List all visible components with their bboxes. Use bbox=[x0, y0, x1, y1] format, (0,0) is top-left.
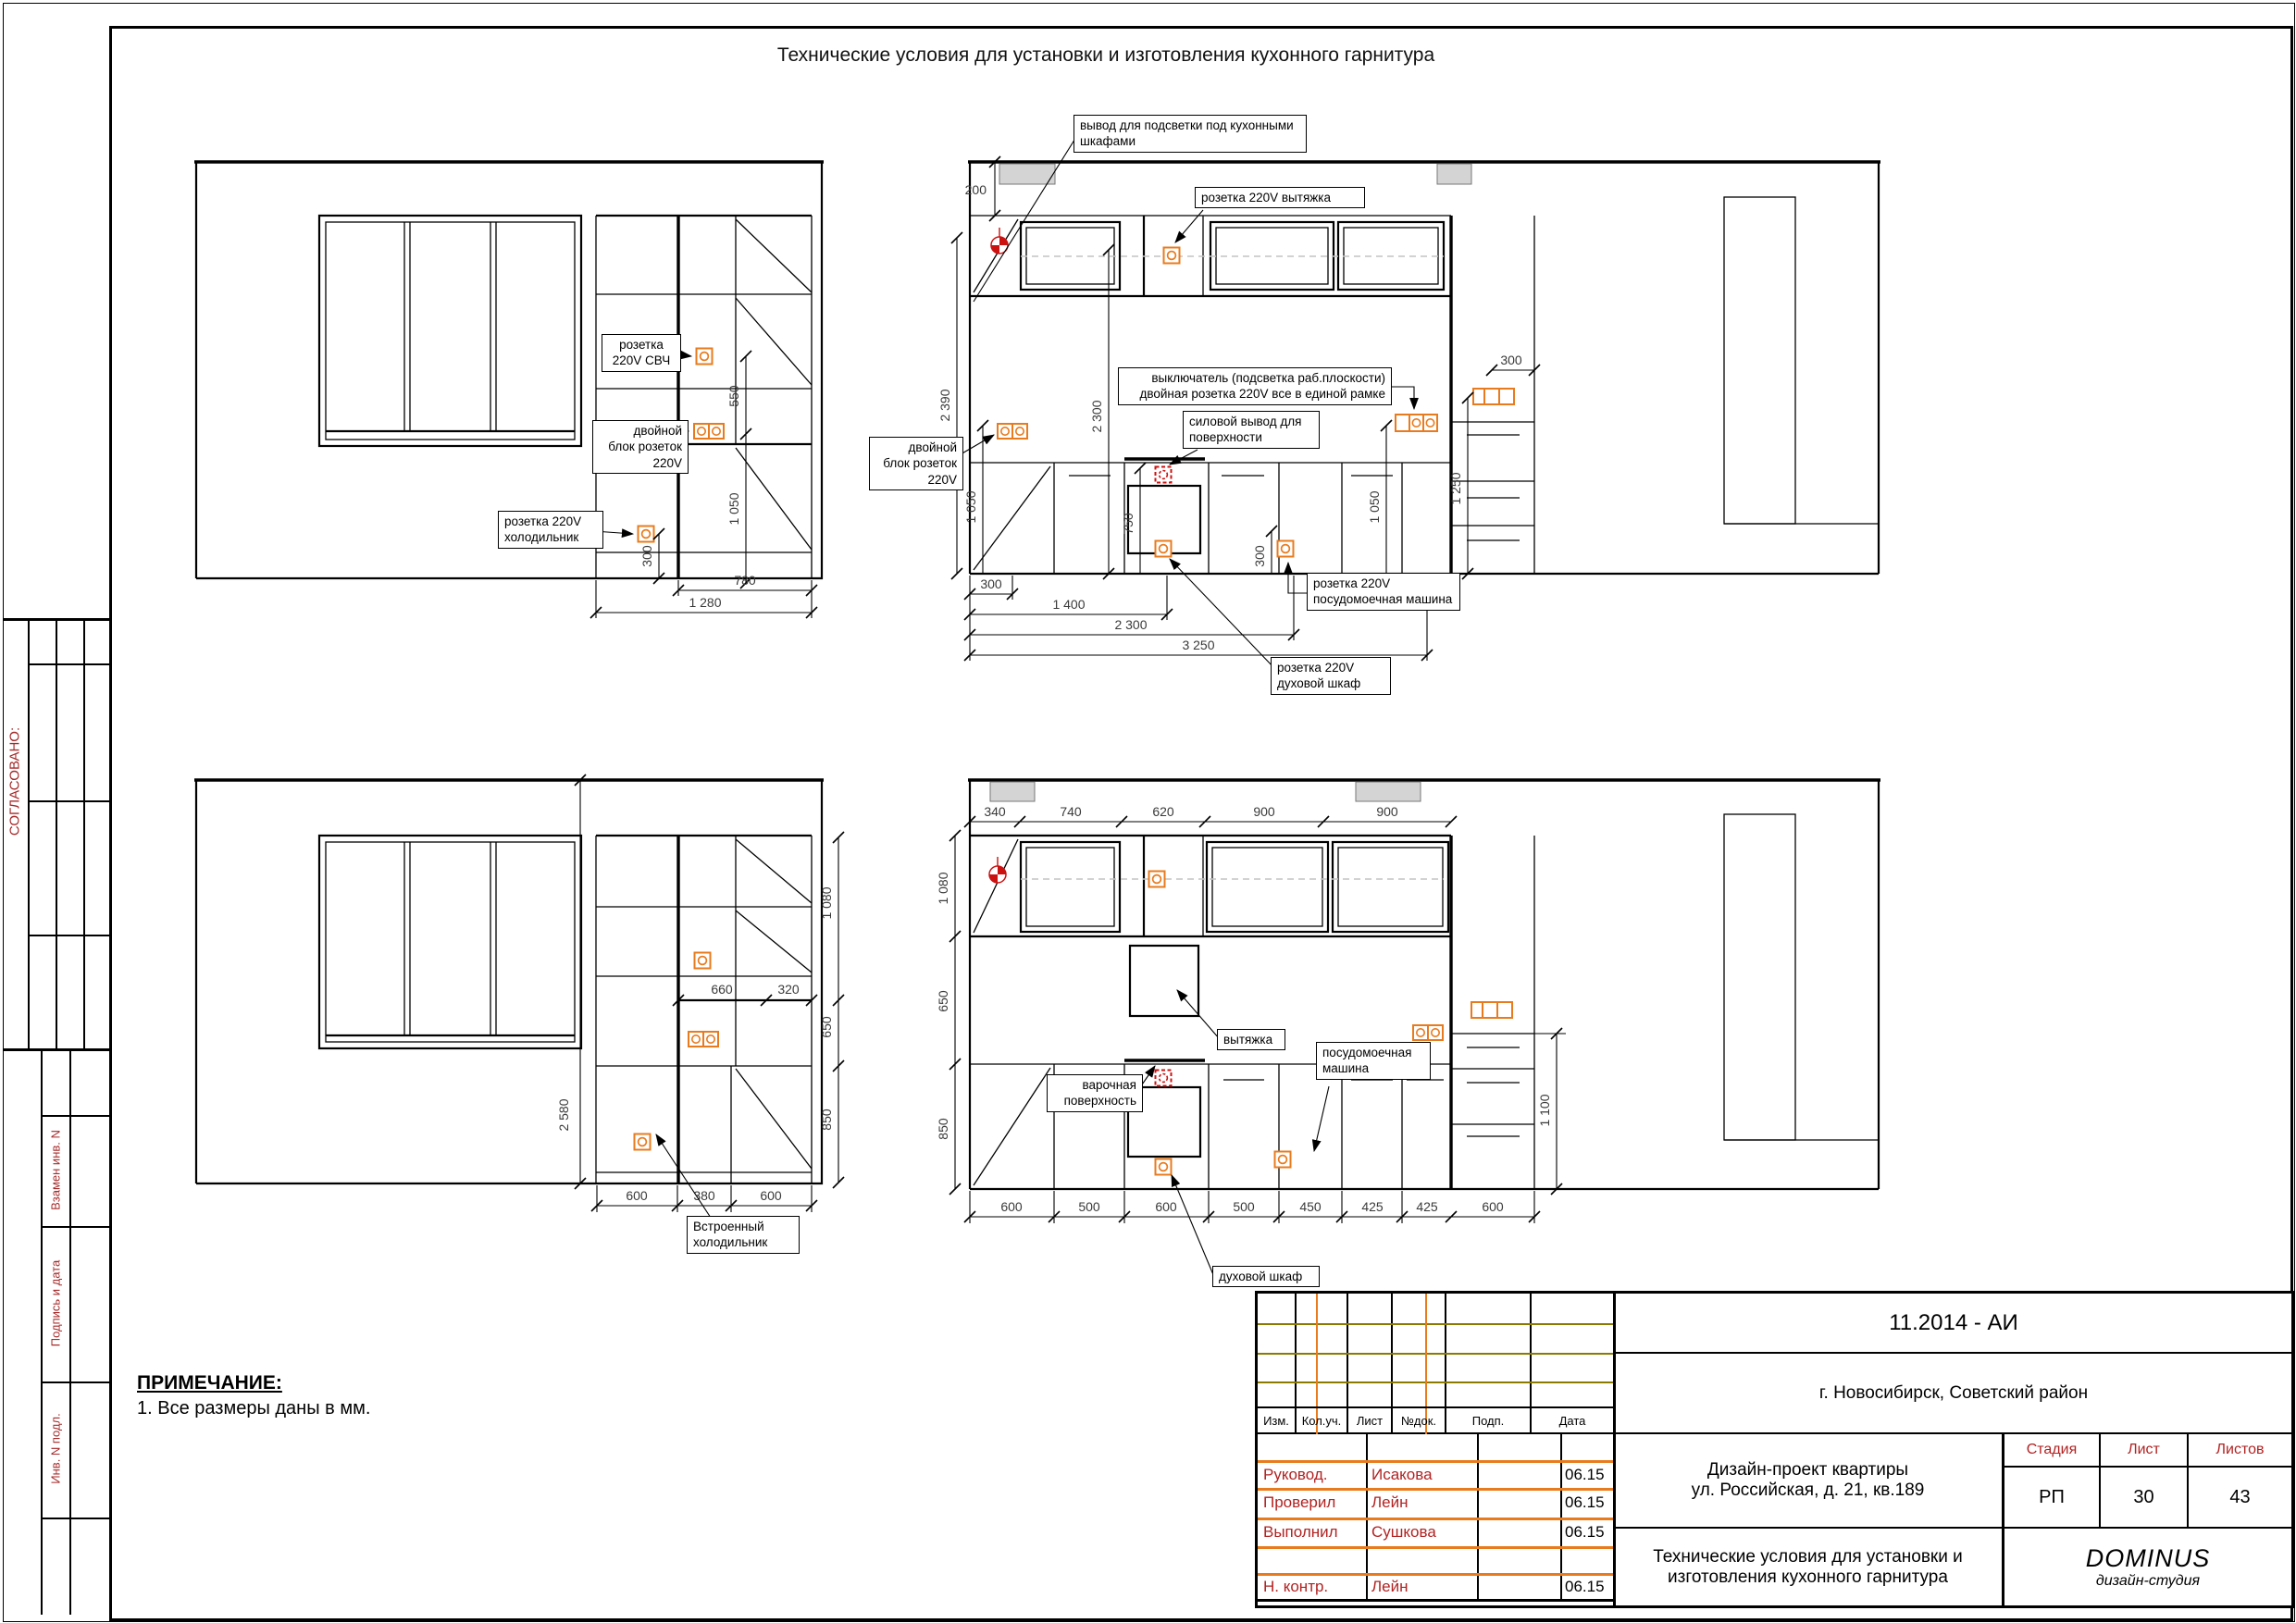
dim-780: 780 bbox=[734, 573, 756, 588]
dim-200: 200 bbox=[965, 182, 987, 197]
socket-fridge-icon bbox=[635, 1134, 651, 1150]
dim-340: 340 bbox=[984, 804, 1006, 819]
dim-2300: 2 300 bbox=[1089, 400, 1104, 432]
dim-1280: 1 280 bbox=[689, 595, 721, 610]
col-izm: Изм. bbox=[1258, 1408, 1295, 1432]
callout-led-output: вывод для подсветки под кухонными шкафам… bbox=[1074, 115, 1307, 153]
sig-date: 06.15 bbox=[1565, 1490, 1611, 1516]
dim-850: 850 bbox=[819, 1109, 834, 1131]
dim-500: 500 bbox=[1233, 1199, 1255, 1214]
socket-microwave-icon bbox=[697, 349, 713, 365]
switch-block-icon bbox=[1471, 1002, 1512, 1018]
callout-double-socket-block: двойной блок розеток 220V bbox=[592, 420, 689, 474]
stage-value: РП bbox=[2004, 1468, 2099, 1527]
sig-role: Руковод. bbox=[1263, 1462, 1363, 1488]
studio-name: DOMINUS bbox=[2086, 1544, 2211, 1573]
socket-dishwasher-icon bbox=[1275, 1152, 1291, 1168]
document-title: Технические условия для установки и изго… bbox=[1616, 1529, 2000, 1605]
power-output-icon bbox=[1156, 1071, 1172, 1086]
sig-role: Проверил bbox=[1263, 1490, 1363, 1516]
dim-300: 300 bbox=[639, 545, 654, 567]
dim-2390: 2 390 bbox=[937, 389, 952, 421]
sheet-number: 30 bbox=[2101, 1468, 2187, 1527]
ceiling-beam bbox=[1437, 164, 1471, 184]
dim-1080: 1 080 bbox=[819, 886, 834, 919]
power-output-icon bbox=[1156, 467, 1172, 483]
socket-hood-icon bbox=[1149, 872, 1165, 887]
callout-dishwasher: посудомоечная машина bbox=[1316, 1042, 1431, 1080]
note-text: 1. Все размеры даны в мм. bbox=[137, 1398, 370, 1419]
dim-740: 740 bbox=[1060, 804, 1082, 819]
callout-socket-oven: розетка 220V духовой шкаф bbox=[1271, 657, 1391, 695]
dim-650: 650 bbox=[819, 1016, 834, 1038]
sheets-total: 43 bbox=[2189, 1468, 2291, 1527]
socket-fridge-icon bbox=[639, 527, 654, 542]
dim-1400: 1 400 bbox=[1052, 597, 1085, 612]
callout-switch-socket-frame: выключатель (подсветка раб.плоскости) дв… bbox=[1118, 367, 1392, 405]
socket-double-block-icon bbox=[694, 424, 724, 439]
dim-300: 300 bbox=[1500, 353, 1522, 367]
stamp-vzamen: Взамен инв. N bbox=[49, 1101, 63, 1240]
col-data: Дата bbox=[1532, 1408, 1613, 1432]
socket-oven-icon bbox=[1156, 1159, 1172, 1175]
socket-double-icon bbox=[1413, 1025, 1443, 1040]
dim-600: 600 bbox=[1482, 1199, 1504, 1214]
callout-socket-fridge: розетка 220V холодильник bbox=[498, 511, 603, 549]
sig-role: Выполнил bbox=[1263, 1519, 1363, 1544]
sig-role: Н. контр. bbox=[1263, 1575, 1363, 1599]
ceiling-beam bbox=[999, 164, 1055, 184]
dim-600: 600 bbox=[1155, 1199, 1177, 1214]
stamp-podpis: Подпись и дата bbox=[49, 1234, 63, 1373]
dim-450: 450 bbox=[1299, 1199, 1322, 1214]
sig-date: 06.15 bbox=[1565, 1462, 1611, 1488]
callout-power-output: силовой вывод для поверхности bbox=[1183, 411, 1320, 449]
view-elevation-window-wall-top: 550 1 050 300 780 1 280 bbox=[194, 162, 824, 618]
dim-2300: 2 300 bbox=[1114, 617, 1147, 632]
callout-socket-microwave: розетка 220V СВЧ bbox=[602, 334, 681, 372]
switch-block-icon bbox=[1473, 389, 1514, 404]
sig-name: Сушкова bbox=[1371, 1519, 1475, 1544]
dim-1250: 1 250 bbox=[1448, 472, 1463, 504]
dim-600: 600 bbox=[626, 1188, 648, 1203]
note-block: ПРИМЕЧАНИЕ: 1. Все размеры даны в мм. bbox=[137, 1372, 370, 1419]
stamp-inv: Инв. N подл. bbox=[49, 1380, 63, 1518]
dim-620: 620 bbox=[1152, 804, 1174, 819]
callout-oven: духовой шкаф bbox=[1212, 1266, 1320, 1287]
sheets-label: Листов bbox=[2189, 1434, 2291, 1466]
dim-600: 600 bbox=[1000, 1199, 1023, 1214]
dim-660: 660 bbox=[711, 982, 733, 997]
project-location: г. Новосибирск, Советский район bbox=[1616, 1354, 2291, 1432]
dim-600: 600 bbox=[760, 1188, 782, 1203]
dim-1080: 1 080 bbox=[936, 872, 950, 904]
dim-750: 750 bbox=[1121, 513, 1136, 535]
socket-double-block-icon bbox=[998, 424, 1027, 439]
dim-500: 500 bbox=[1078, 1199, 1100, 1214]
col-ndoc: №док. bbox=[1393, 1408, 1445, 1432]
dim-300: 300 bbox=[980, 576, 1002, 591]
sig-name: Лейн bbox=[1371, 1575, 1475, 1599]
title-block: Изм. Кол.уч. Лист №док. Подп. Дата Руков… bbox=[1255, 1291, 2294, 1608]
dim-650: 650 bbox=[936, 990, 950, 1012]
sheet-label: Лист bbox=[2101, 1434, 2187, 1466]
dim-1050: 1 050 bbox=[1367, 490, 1382, 523]
dim-1050: 1 050 bbox=[726, 492, 741, 525]
dim-900: 900 bbox=[1253, 804, 1275, 819]
ceiling-beam bbox=[1356, 782, 1421, 801]
stamp-soglasovano: СОГЛАСОВАНО: bbox=[7, 712, 23, 851]
socket-dishwasher-icon bbox=[1278, 541, 1294, 557]
dim-1050: 1 050 bbox=[963, 490, 978, 523]
dim-550: 550 bbox=[726, 385, 741, 407]
dim-850: 850 bbox=[936, 1118, 950, 1140]
socket-double-icon bbox=[689, 1032, 718, 1047]
note-title: ПРИМЕЧАНИЕ: bbox=[137, 1372, 370, 1394]
socket-hood-icon bbox=[1164, 248, 1180, 264]
callout-socket-hood: розетка 220V вытяжка bbox=[1195, 187, 1365, 208]
callout-cooktop: варочная поверхность bbox=[1047, 1074, 1143, 1112]
studio-cell: DOMINUS дизайн-студия bbox=[2004, 1529, 2291, 1605]
dim-3250: 3 250 bbox=[1182, 638, 1214, 652]
callout-double-socket-block: двойной блок розеток 220V bbox=[869, 437, 963, 490]
project-code: 11.2014 - АИ bbox=[1616, 1294, 2291, 1352]
view-elevation-kitchen-bottom: 340 740 620 900 900 bbox=[936, 780, 1880, 1277]
dim-425: 425 bbox=[1416, 1199, 1438, 1214]
view-elevation-window-wall-bottom: 2 580 1 080 650 850 bbox=[194, 774, 844, 1218]
light-output-icon bbox=[989, 866, 1006, 883]
col-podp: Подп. bbox=[1446, 1408, 1530, 1432]
stage-label: Стадия bbox=[2004, 1434, 2099, 1466]
callout-built-in-fridge: Встроенный холодильник bbox=[687, 1216, 800, 1254]
drawing-sheet: Технические условия для установки и изго… bbox=[0, 0, 2296, 1623]
callout-hood: вытяжка bbox=[1217, 1029, 1285, 1050]
socket-oven-icon bbox=[1156, 541, 1172, 557]
col-kol: Кол.уч. bbox=[1297, 1408, 1347, 1432]
dim-2580: 2 580 bbox=[556, 1098, 571, 1131]
col-list: Лист bbox=[1348, 1408, 1391, 1432]
dim-425: 425 bbox=[1361, 1199, 1384, 1214]
ceiling-beam bbox=[990, 782, 1035, 801]
dim-320: 320 bbox=[777, 982, 800, 997]
project-name: Дизайн-проект квартиры ул. Российская, д… bbox=[1616, 1434, 2000, 1527]
dim-1100: 1 100 bbox=[1537, 1094, 1552, 1126]
socket-single-icon bbox=[695, 953, 711, 969]
studio-subtitle: дизайн-студия bbox=[2096, 1573, 2200, 1590]
sig-date: 06.15 bbox=[1565, 1519, 1611, 1544]
dim-300: 300 bbox=[1252, 545, 1267, 567]
sig-name: Лейн bbox=[1371, 1490, 1475, 1516]
sig-name: Исакова bbox=[1371, 1462, 1475, 1488]
callout-socket-dishwasher: розетка 220V посудомоечная машина bbox=[1307, 573, 1460, 611]
sig-date: 06.15 bbox=[1565, 1575, 1611, 1599]
switch-socket-frame-icon bbox=[1396, 415, 1437, 431]
hood-box bbox=[1130, 946, 1198, 1016]
dim-900: 900 bbox=[1376, 804, 1398, 819]
